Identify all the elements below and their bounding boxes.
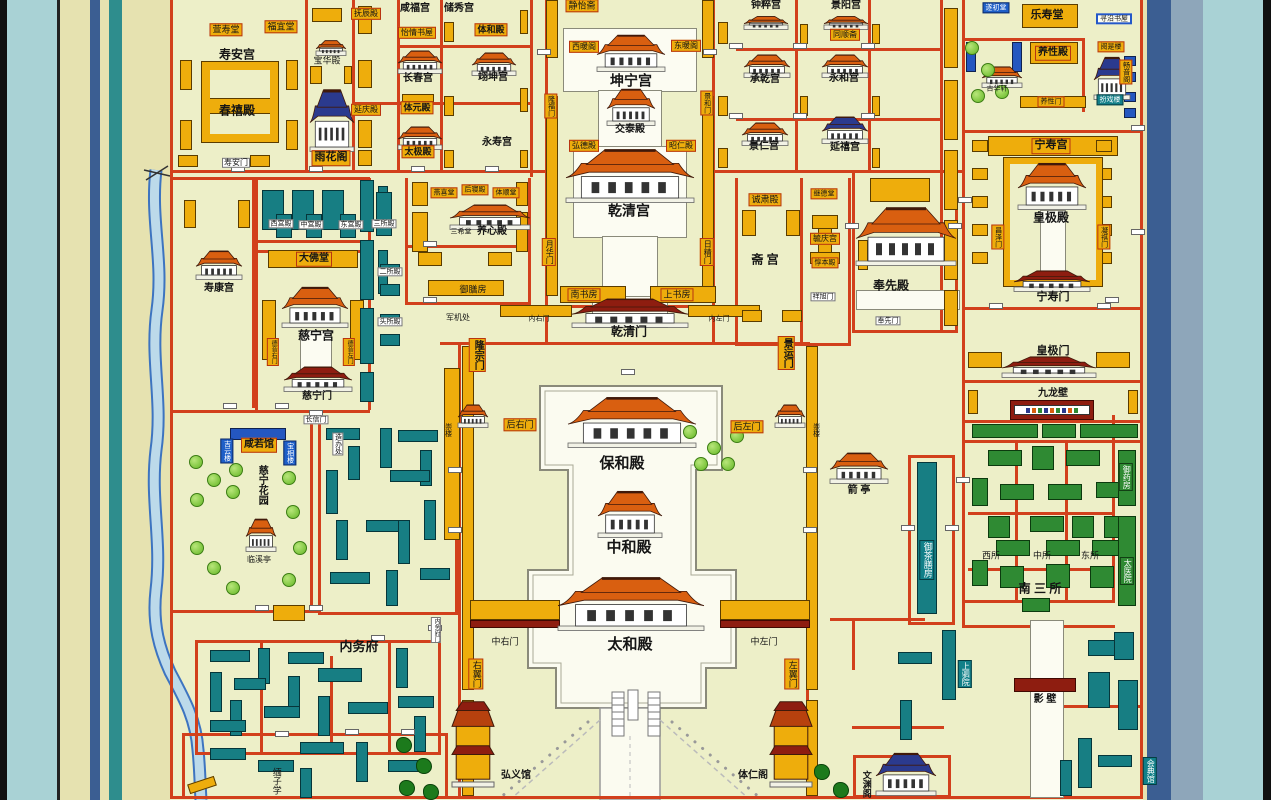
- map-label: 三希堂: [451, 228, 472, 235]
- gate-marker: [958, 197, 972, 203]
- map-label: 内务府: [339, 640, 378, 654]
- map-label: 继德堂: [811, 188, 838, 199]
- building-gold: [718, 96, 728, 116]
- wall-segment: [852, 330, 958, 333]
- building-teal: [300, 742, 344, 754]
- map-label: 凝祺门: [1097, 225, 1110, 250]
- map-label: 古华轩: [987, 85, 1008, 92]
- temple-icon: [876, 752, 936, 796]
- building-teal: [380, 428, 392, 468]
- map-label: 遂初堂: [983, 2, 1010, 13]
- building-teal: [330, 572, 370, 584]
- wall-segment: [195, 640, 198, 754]
- tree-icon: [189, 455, 203, 469]
- building-teal: [1114, 632, 1134, 660]
- building-teal: [234, 678, 266, 690]
- building-green: [1022, 598, 1050, 612]
- colonnade-ring: [202, 62, 278, 142]
- building-gold: [178, 155, 198, 167]
- map-label: 南书房: [567, 288, 600, 301]
- map-label: 储秀宫: [444, 4, 474, 15]
- temple-icon: [1002, 356, 1096, 378]
- building-teal: [380, 284, 400, 296]
- map-label: 景阳宫: [831, 1, 861, 12]
- temple-icon: [246, 518, 276, 552]
- wall-segment: [908, 455, 955, 458]
- tree-icon: [399, 780, 415, 796]
- wall-segment: [182, 735, 185, 798]
- building-gold: [250, 155, 270, 167]
- building-green: [1032, 446, 1054, 470]
- map-label: 军机处: [446, 314, 470, 322]
- tree-icon: [694, 457, 708, 471]
- building-gold: [720, 600, 810, 620]
- building-gold: [944, 290, 958, 326]
- wall-segment: [965, 38, 1085, 41]
- map-label: 体和殿: [474, 23, 507, 36]
- wall-segment: [445, 735, 448, 798]
- building-teal: [356, 742, 368, 782]
- map-label: 咸若馆: [241, 438, 277, 453]
- building-gold: [872, 148, 880, 168]
- building-gold: [1096, 140, 1112, 152]
- building-teal: [398, 430, 438, 442]
- temple-icon: [607, 88, 655, 126]
- gate-marker: [861, 43, 875, 49]
- wall-segment: [255, 240, 368, 243]
- wall-segment: [868, 0, 871, 172]
- map-label: 会典馆: [1143, 757, 1157, 785]
- building-teal: [336, 520, 348, 560]
- map-label: 后左门: [730, 420, 763, 433]
- map-label: 长信门: [304, 415, 329, 424]
- temple-icon: [1014, 270, 1090, 292]
- map-label: 春禧殿: [219, 105, 255, 118]
- gate-marker: [1131, 125, 1145, 131]
- temple-icon: [856, 206, 956, 266]
- building-gold: [444, 368, 460, 540]
- gate-marker: [1097, 303, 1111, 309]
- building-teal: [420, 568, 450, 580]
- building-gold: [972, 196, 988, 208]
- map-label: 隆福门: [544, 94, 557, 119]
- temple-icon: [598, 490, 662, 538]
- gate-marker: [255, 605, 269, 611]
- map-label: 弘义馆: [501, 771, 531, 782]
- wall-segment: [852, 726, 944, 729]
- map-label: 德音左门: [343, 338, 355, 366]
- map-label: 大佛堂: [296, 252, 332, 267]
- map-label: 西所: [982, 551, 1000, 560]
- gate-marker: [448, 467, 462, 473]
- map-label: 箭 亭: [848, 486, 871, 497]
- temple-icon: [282, 286, 348, 328]
- building-teal: [360, 308, 374, 364]
- building-teal: [386, 570, 398, 606]
- building-gold: [444, 22, 454, 42]
- tree-icon: [416, 758, 432, 774]
- map-label: 宁寿宫: [1032, 138, 1071, 154]
- gate-marker: [423, 297, 437, 303]
- map-label: 惇本殿: [812, 257, 839, 268]
- building-teal: [380, 334, 400, 346]
- map-label: 内左门: [709, 315, 730, 322]
- building-teal: [210, 748, 246, 760]
- building-gold: [286, 60, 298, 90]
- building-gold: [812, 215, 838, 229]
- map-label: 延庆殿: [351, 104, 381, 116]
- wall-segment: [948, 755, 951, 798]
- map-label: 宝相楼: [283, 441, 296, 466]
- temple-icon: [770, 700, 812, 788]
- building-teal: [1060, 760, 1072, 796]
- tree-icon: [229, 463, 243, 477]
- building-gold: [944, 8, 958, 68]
- map-label: 月华门: [542, 238, 556, 266]
- tree-icon: [190, 541, 204, 555]
- gate-marker: [793, 113, 807, 119]
- map-label: 中和殿: [606, 540, 651, 556]
- map-label: 三所殿: [372, 219, 397, 228]
- temple-icon: [196, 250, 242, 280]
- map-label: 寿安门: [222, 158, 250, 168]
- building-gold: [462, 346, 474, 690]
- gate-marker: [729, 113, 743, 119]
- gate-marker: [861, 113, 875, 119]
- map-label: 上书房: [660, 288, 693, 301]
- tree-icon: [226, 581, 240, 595]
- gate-marker: [485, 166, 499, 172]
- map-label: 内右门: [529, 315, 550, 322]
- gate-marker: [948, 223, 962, 229]
- map-label: 后右门: [503, 418, 536, 431]
- screen-wall: [470, 620, 560, 628]
- building-gold: [180, 120, 192, 150]
- map-label: 皇极殿: [1033, 212, 1069, 225]
- map-label: 造办处: [332, 433, 343, 456]
- map-label: 太和殿: [607, 637, 652, 653]
- temple-icon: [830, 452, 888, 484]
- map-label: 德音右门: [267, 338, 279, 366]
- map-label: 临溪亭: [247, 556, 271, 564]
- building-green: [972, 478, 988, 506]
- building-gold: [944, 80, 958, 140]
- tree-icon: [833, 782, 849, 798]
- map-label: 东宫殿: [339, 220, 364, 229]
- map-label: 抚辰殿: [351, 8, 381, 20]
- building-gold: [972, 224, 988, 236]
- wall-segment: [848, 178, 851, 345]
- gate-marker: [401, 729, 415, 735]
- building-teal: [360, 240, 374, 300]
- map-label: 宁寿门: [1037, 292, 1070, 304]
- map-label: 奉先门: [876, 316, 901, 325]
- gate-marker: [703, 49, 717, 55]
- wall-segment: [405, 178, 408, 304]
- wall-segment: [736, 48, 943, 51]
- map-label: 翊坤宫: [478, 73, 508, 84]
- building-teal: [1098, 755, 1132, 767]
- wall-segment: [852, 170, 855, 332]
- building-gold: [782, 310, 802, 322]
- marble-platform: [1030, 620, 1064, 798]
- gate-marker: [1131, 229, 1145, 235]
- tree-icon: [965, 41, 979, 55]
- building-gold: [972, 140, 988, 152]
- building-green: [1042, 424, 1076, 438]
- building-green: [1080, 424, 1138, 438]
- gate-marker: [345, 729, 359, 735]
- map-label: 体元殿: [400, 101, 433, 114]
- building-gold: [546, 96, 558, 296]
- map-label: 养性殿: [1035, 46, 1071, 61]
- building-gold: [972, 168, 988, 180]
- temple-icon: [558, 576, 704, 631]
- tree-icon: [683, 425, 697, 439]
- building-gold: [718, 22, 728, 44]
- map-label: 二所殿: [378, 267, 403, 276]
- map-label: 体顺堂: [493, 187, 520, 198]
- wall-segment: [852, 620, 855, 670]
- wall-segment: [962, 440, 1143, 443]
- map-label: 崇楼: [812, 423, 819, 437]
- map-label: 怡情书屋: [398, 27, 436, 39]
- building-green: [972, 560, 988, 586]
- building-teal: [396, 648, 408, 688]
- building-green: [972, 424, 1038, 438]
- building-gold: [944, 150, 958, 210]
- map-label: 景运门: [778, 336, 795, 370]
- building-gold: [418, 252, 442, 266]
- wall-segment: [908, 455, 911, 625]
- tree-icon: [971, 89, 985, 103]
- map-label: 东暖阁: [671, 40, 701, 52]
- temple-icon: [284, 366, 352, 392]
- map-label: 西暖阁: [569, 41, 599, 53]
- gate-marker: [309, 166, 323, 172]
- building-teal: [264, 706, 300, 718]
- building-teal: [898, 652, 932, 664]
- map-label: 畅音阁: [1119, 60, 1132, 85]
- temple-icon: [568, 396, 696, 448]
- building-teal: [348, 446, 360, 480]
- gate-marker: [956, 477, 970, 483]
- map-label: 斋 宫: [751, 254, 778, 267]
- building-gold: [358, 150, 372, 166]
- building-gold: [310, 66, 322, 84]
- temple-icon: [597, 34, 665, 72]
- map-label: 交泰殿: [615, 125, 645, 136]
- temple-icon: [310, 88, 354, 152]
- building-gold: [180, 60, 192, 90]
- gate-marker: [309, 605, 323, 611]
- inner-river: [154, 170, 201, 800]
- building-gold: [286, 120, 298, 150]
- map-label: 永寿宫: [482, 138, 512, 149]
- gate-marker: [275, 403, 289, 409]
- temple-icon: [398, 50, 442, 74]
- building-gold: [412, 182, 428, 206]
- tree-icon: [423, 784, 439, 800]
- map-label: 隆宗门: [469, 338, 486, 372]
- map-label: 弘德殿: [569, 140, 599, 152]
- building-teal: [210, 650, 250, 662]
- map-label: 坤宁宫: [610, 74, 652, 89]
- building-gold: [344, 66, 352, 84]
- map-label: 西宫殿: [269, 219, 294, 228]
- map-label: 寿康宫: [204, 284, 234, 295]
- map-label: 中宫殿: [299, 220, 324, 229]
- wall-segment: [795, 0, 798, 172]
- map-label: 同顺斋: [830, 29, 860, 41]
- wall-segment: [735, 178, 738, 345]
- wall-segment: [962, 380, 1143, 383]
- wall-segment: [528, 178, 531, 304]
- map-label: 燕喜堂: [431, 187, 458, 198]
- wall-segment: [830, 618, 925, 621]
- map-label: 养性门: [1038, 96, 1065, 107]
- gate-marker: [423, 241, 437, 247]
- nine-dragon-screen-icon: [1010, 400, 1094, 420]
- tree-icon: [981, 63, 995, 77]
- building-green: [1030, 516, 1064, 532]
- tree-icon: [396, 737, 412, 753]
- wall-segment: [908, 622, 955, 625]
- building-green: [1066, 450, 1100, 466]
- map-label: 钟粹宫: [751, 1, 781, 12]
- building-green: [1000, 484, 1034, 500]
- tree-icon: [814, 764, 830, 780]
- building-gold: [238, 200, 250, 228]
- map-label: 静怡斋: [565, 0, 598, 13]
- building-green: [988, 450, 1022, 466]
- wall-segment: [962, 420, 1143, 423]
- map-label: 承乾宫: [750, 75, 780, 86]
- map-label: 雨花阁: [312, 150, 351, 166]
- map-label: 奉先殿: [873, 280, 909, 293]
- tree-icon: [190, 493, 204, 507]
- gate-marker: [793, 43, 807, 49]
- building-gold: [312, 8, 342, 22]
- building-teal: [900, 700, 912, 740]
- building-blue: [1124, 108, 1136, 118]
- gate-marker: [945, 525, 959, 531]
- wall-segment: [712, 170, 963, 173]
- building-gold: [1096, 352, 1130, 368]
- gate-marker: [411, 166, 425, 172]
- building-gold: [444, 150, 454, 168]
- gate-marker: [729, 43, 743, 49]
- map-label: 乾清门: [611, 326, 647, 339]
- temple-icon: [572, 298, 688, 328]
- building-teal: [1118, 680, 1138, 730]
- building-teal: [942, 630, 956, 700]
- tree-icon: [207, 561, 221, 575]
- tree-icon: [282, 573, 296, 587]
- map-label: 慈宁花园: [256, 465, 267, 505]
- wall-segment: [853, 755, 856, 798]
- map-label: 扮戏楼: [1097, 94, 1124, 105]
- building-gold: [786, 210, 800, 236]
- wall-segment: [170, 0, 173, 798]
- gate-marker: [223, 403, 237, 409]
- tree-icon: [286, 505, 300, 519]
- building-teal: [1088, 672, 1110, 708]
- wall-segment: [195, 640, 441, 643]
- map-label: 影 壁: [1034, 695, 1057, 706]
- map-label: 景和门: [700, 91, 713, 116]
- map-label: 中右门: [491, 637, 518, 646]
- building-teal: [414, 716, 426, 752]
- wall-segment: [968, 512, 1115, 515]
- wall-segment: [318, 612, 458, 615]
- map-label: 吉云楼: [220, 439, 233, 464]
- wall-segment: [388, 642, 391, 754]
- map-label: 慈宁宫: [298, 330, 334, 343]
- building-green: [996, 540, 1030, 556]
- temple-icon: [316, 40, 346, 56]
- map-label: 后寝殿: [462, 184, 489, 195]
- temple-icon: [822, 116, 868, 144]
- map-label: 保和殿: [599, 456, 644, 472]
- map-label: 昭仁殿: [666, 140, 696, 152]
- map-label: 祥旭门: [811, 292, 836, 301]
- gate-marker: [621, 369, 635, 375]
- wall-segment: [318, 415, 321, 613]
- building-gold: [520, 88, 528, 112]
- building-gold: [800, 24, 808, 44]
- gate-marker: [845, 223, 859, 229]
- building-teal: [424, 500, 436, 540]
- wall-segment: [1140, 0, 1143, 798]
- building-teal: [318, 668, 362, 682]
- tree-icon: [293, 541, 307, 555]
- temple-icon: [458, 404, 488, 428]
- building-gold: [806, 346, 818, 690]
- building-gold: [702, 96, 714, 296]
- building-teal: [318, 696, 330, 736]
- wall-segment: [962, 0, 965, 627]
- map-label: 九龙壁: [1038, 389, 1068, 400]
- map-label: 东所: [1081, 551, 1099, 560]
- map-label: 诚肃殿: [748, 193, 781, 206]
- map-label: 寿安宫: [219, 49, 255, 62]
- building-gold: [968, 352, 1002, 368]
- wall-segment: [310, 415, 313, 613]
- map-label: 福宜堂: [264, 20, 297, 33]
- map-label: 景仁宫: [749, 142, 779, 153]
- wall-segment: [252, 178, 255, 408]
- tree-icon: [721, 457, 735, 471]
- gate-marker: [803, 527, 817, 533]
- map-label: 咸福宫: [400, 4, 430, 15]
- building-green: [1046, 540, 1080, 556]
- building-gold: [358, 60, 372, 88]
- map-label: 养心殿: [477, 227, 507, 238]
- building-teal: [917, 462, 937, 614]
- building-gold: [520, 10, 528, 34]
- wall-segment: [170, 177, 370, 180]
- map-label: 太医院: [1120, 557, 1134, 585]
- building-green: [1072, 516, 1094, 538]
- gate-marker: [275, 731, 289, 737]
- map-label: 崇楼: [444, 423, 451, 437]
- map-label: 慈宁门: [302, 392, 332, 403]
- building-green: [1090, 566, 1114, 588]
- building-teal: [326, 470, 338, 514]
- screen-wall: [1014, 678, 1076, 692]
- building-gold: [968, 390, 978, 414]
